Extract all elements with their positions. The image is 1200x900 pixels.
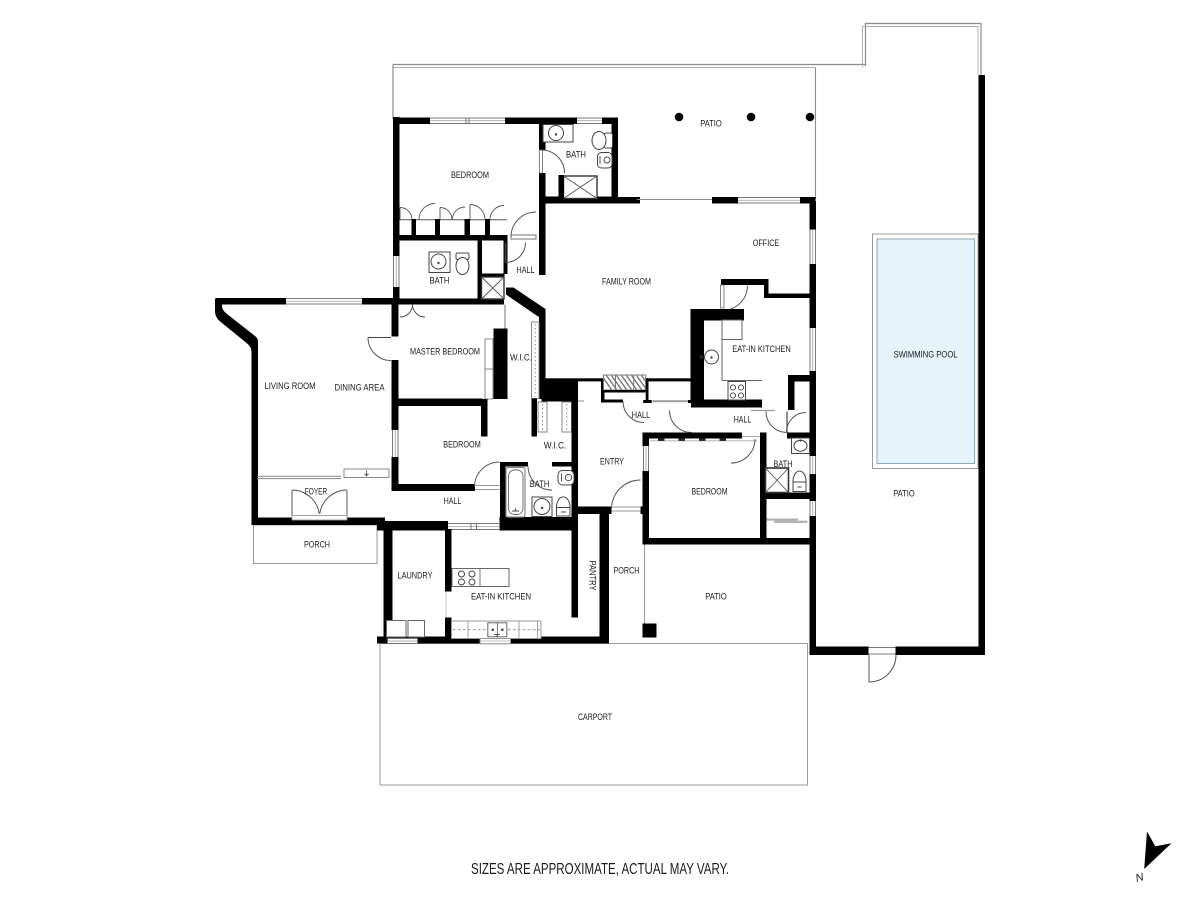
svg-text:HALL: HALL <box>517 265 535 275</box>
svg-text:FOYER: FOYER <box>305 487 328 497</box>
svg-text:PATIO: PATIO <box>700 119 722 129</box>
svg-text:PORCH: PORCH <box>304 540 330 550</box>
svg-text:BEDROOM: BEDROOM <box>443 440 481 450</box>
svg-text:EAT-IN KITCHEN: EAT-IN KITCHEN <box>732 344 791 354</box>
svg-text:W.I.C.: W.I.C. <box>544 441 567 451</box>
svg-text:PANTRY: PANTRY <box>588 561 598 591</box>
svg-text:PATIO: PATIO <box>893 489 915 499</box>
svg-text:HALL: HALL <box>734 415 752 425</box>
svg-text:BATH: BATH <box>774 459 793 469</box>
svg-text:OFFICE: OFFICE <box>753 238 780 248</box>
svg-text:DINING AREA: DINING AREA <box>335 383 385 393</box>
svg-text:BATH: BATH <box>530 479 550 489</box>
svg-text:ENTRY: ENTRY <box>600 457 624 467</box>
svg-text:PORCH: PORCH <box>614 566 640 576</box>
svg-text:BEDROOM: BEDROOM <box>692 487 728 497</box>
svg-text:SIZES ARE APPROXIMATE, ACTUAL: SIZES ARE APPROXIMATE, ACTUAL MAY VARY. <box>471 861 729 878</box>
svg-text:FAMILY ROOM: FAMILY ROOM <box>602 277 651 287</box>
svg-text:BEDROOM: BEDROOM <box>451 170 489 180</box>
svg-text:SWIMMING POOL: SWIMMING POOL <box>894 350 958 360</box>
svg-text:HALL: HALL <box>632 410 650 420</box>
svg-text:BATH: BATH <box>566 150 586 160</box>
svg-text:W.I.C.: W.I.C. <box>510 353 532 363</box>
svg-text:BATH: BATH <box>430 276 450 286</box>
svg-text:LAUNDRY: LAUNDRY <box>398 571 433 581</box>
svg-text:PATIO: PATIO <box>705 592 727 602</box>
svg-text:HALL: HALL <box>444 496 462 506</box>
svg-text:CARPORT: CARPORT <box>578 712 612 722</box>
svg-text:LIVING ROOM: LIVING ROOM <box>265 381 316 391</box>
svg-text:EAT-IN KITCHEN: EAT-IN KITCHEN <box>471 592 531 602</box>
svg-text:MASTER BEDROOM: MASTER BEDROOM <box>410 347 480 357</box>
